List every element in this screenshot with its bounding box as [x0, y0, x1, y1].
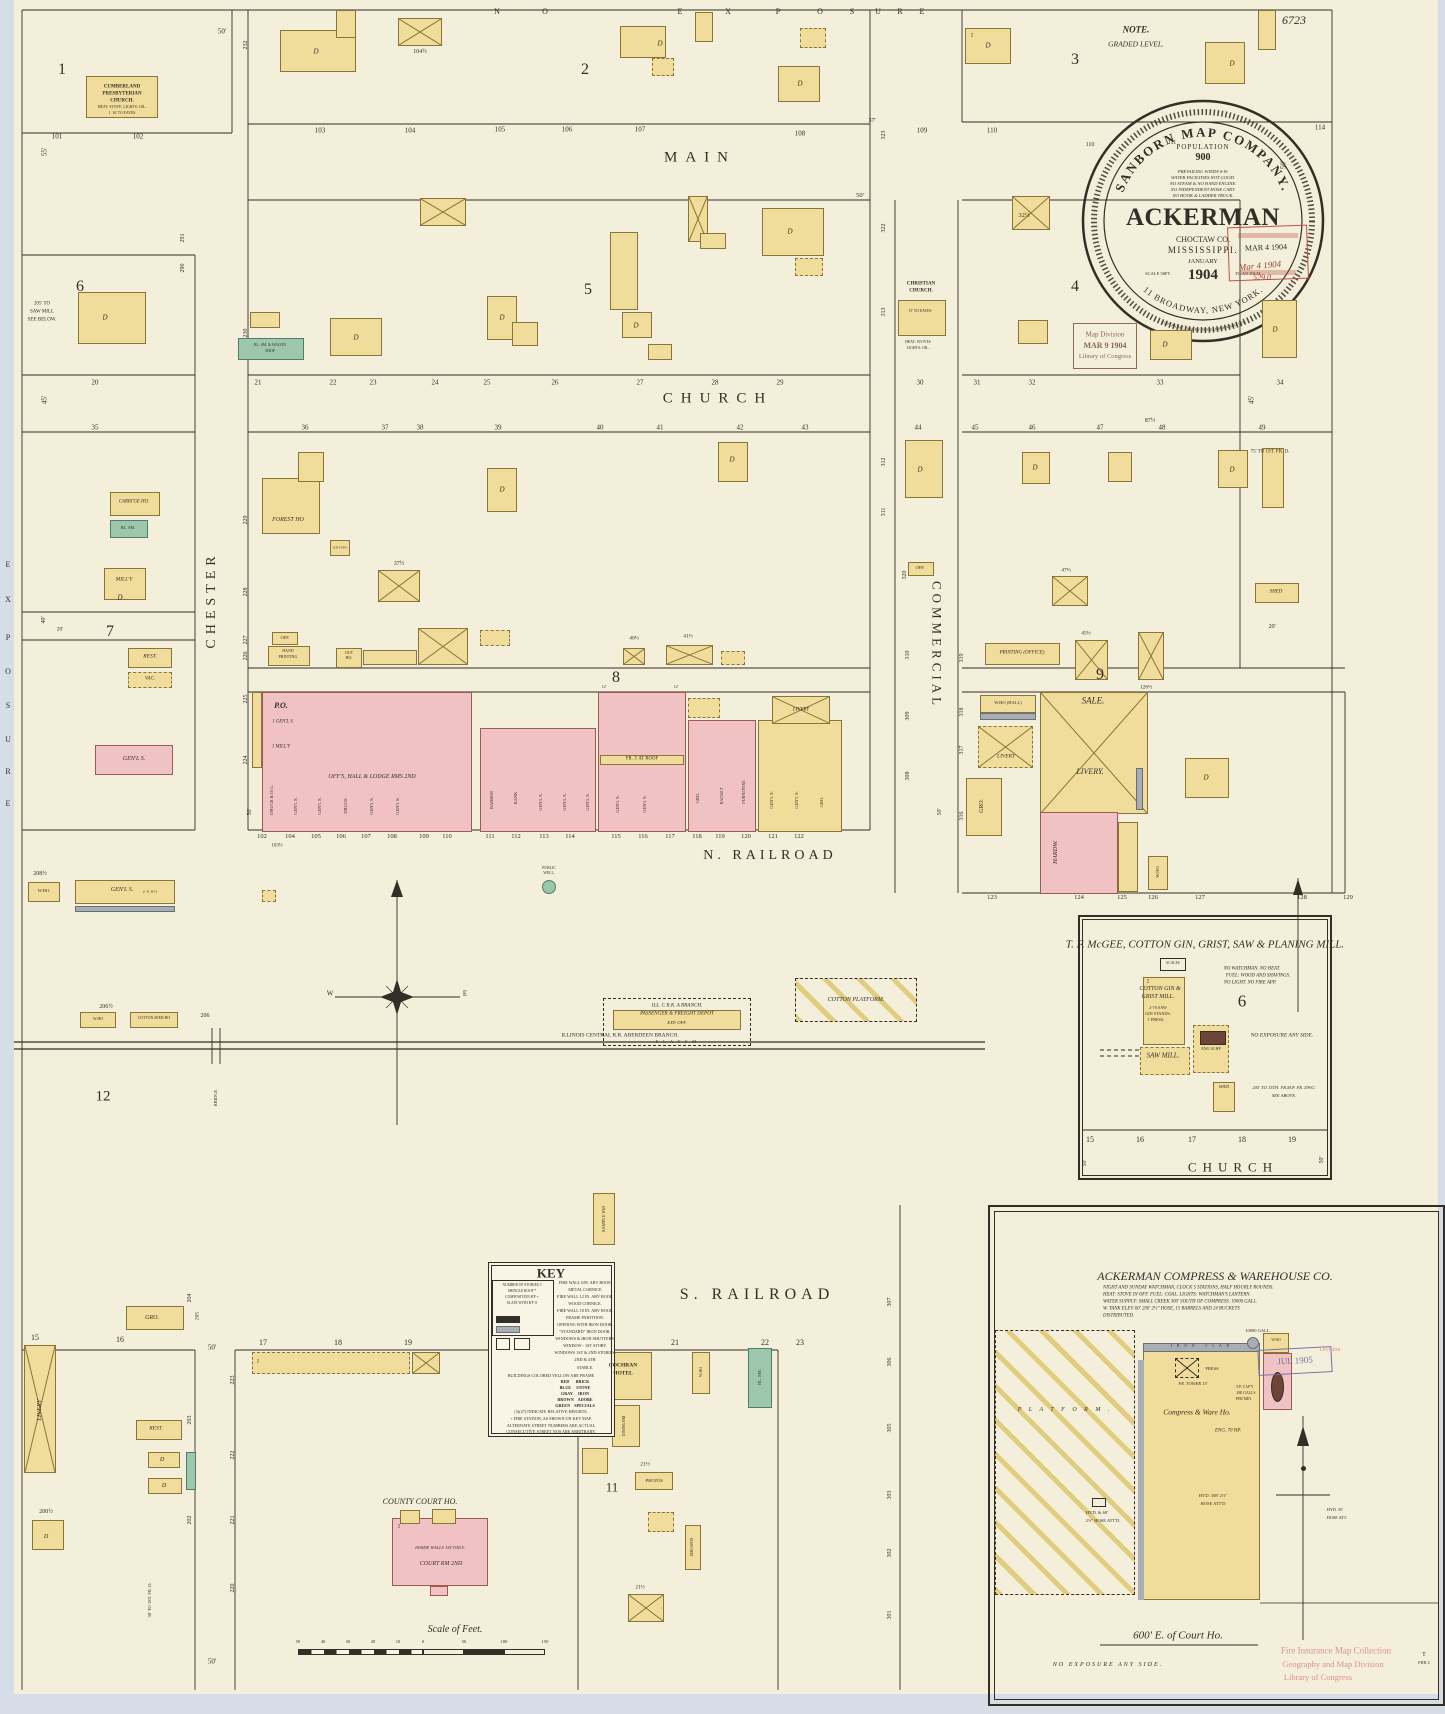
building-label: GEN'L S.	[111, 887, 134, 893]
map-label: BROWN ADOBE	[557, 1398, 592, 1402]
map-label: 50'	[208, 1345, 216, 1352]
map-label: WELL.	[543, 872, 555, 876]
building	[762, 208, 824, 256]
map-label: 206	[201, 1013, 210, 1019]
map-label: 50'	[218, 29, 226, 36]
building	[336, 10, 356, 38]
block-number: 9	[1096, 667, 1104, 683]
map-label: 2	[971, 34, 974, 39]
map-label: DRUGS & D.G.	[270, 785, 275, 815]
street-number: 15	[1086, 1136, 1094, 1144]
map-label: HOSE ATT.	[1327, 1516, 1347, 1520]
street-number: 110	[987, 128, 997, 135]
building-label: GEN'L S.	[123, 756, 146, 762]
stamp-loc-pink: Library of Congress	[1284, 1673, 1352, 1682]
stamp-purple-text: JUL 1905	[1277, 1356, 1313, 1367]
hydrant-icon	[1092, 1498, 1106, 1507]
fire-pump-icon	[1271, 1372, 1284, 1402]
map-label: D	[160, 1457, 164, 1463]
map-label: D	[102, 315, 107, 322]
stamp-loc-pink: Geography and Map Division	[1282, 1660, 1383, 1669]
map-label: S	[850, 8, 854, 16]
inset-title-compress: ACKERMAN COMPRESS & WAREHOUSE CO.	[1097, 1270, 1332, 1282]
map-label: FIRE WALL 18 IN. ABV ROOF,	[557, 1309, 613, 1313]
building-forest-house	[262, 478, 320, 534]
building	[648, 344, 672, 360]
map-label: R	[5, 768, 10, 776]
street-number: 26	[552, 380, 559, 387]
street-number: 127	[1195, 895, 1205, 902]
building-label: REST.	[143, 654, 157, 660]
building	[186, 1452, 196, 1490]
map-label: 32½	[1018, 213, 1029, 220]
street-number: 228	[243, 588, 249, 597]
block-number: 2	[581, 62, 589, 78]
block-number: 3	[1071, 52, 1079, 68]
building	[1150, 330, 1192, 360]
map-label: BUILDINGS COLORED YELLOW ARE FRAME	[508, 1374, 595, 1378]
map-label: HEAT: STOVE IN OFF. FUEL: COAL. LIGHTS: …	[1103, 1294, 1251, 1299]
map-label: KITCH'N	[333, 546, 347, 550]
railroad-label: ILLINOIS CENTRAL R.R. ABERDEEN BRANCH.	[561, 1033, 678, 1039]
map-label: 1 PRESS.	[1148, 1018, 1165, 1022]
building-brick-row-center	[480, 728, 596, 832]
map-label: SAMPLE RM	[602, 1206, 607, 1232]
stamp-red-text: Division	[1320, 1347, 1341, 1353]
building	[700, 233, 726, 249]
building	[1205, 42, 1245, 84]
map-label: O	[542, 8, 548, 16]
map-label: HAND	[282, 649, 294, 653]
scale-label: Scale of Feet.	[428, 1625, 483, 1635]
map-label: 126½	[1140, 685, 1152, 691]
map-label: 50'	[208, 1659, 216, 1666]
building	[905, 440, 943, 498]
map-label: D	[1203, 775, 1208, 782]
street-number: 120	[741, 834, 751, 841]
street-number: 29	[777, 380, 784, 387]
map-label: SEE BELOW.	[28, 318, 57, 323]
street-number: 310	[905, 651, 911, 660]
street-number: 27	[637, 380, 644, 387]
map-label: 21½	[635, 1585, 645, 1591]
map-label: 45'	[1249, 396, 1256, 404]
building	[688, 720, 756, 832]
building	[104, 568, 146, 600]
logo-fact: NO INDEPENDENT HOSE CART.	[1170, 187, 1236, 192]
building	[978, 726, 1033, 768]
street-number: 115	[611, 834, 621, 841]
map-label: OFF.	[280, 636, 289, 641]
street-number: 25	[484, 380, 491, 387]
building-label: BL. SM. & WAGON	[254, 344, 286, 348]
street-number: 309	[905, 712, 911, 721]
map-label: 10000 GALL.	[1245, 1329, 1271, 1334]
building	[400, 1510, 420, 1524]
street-number: 102	[133, 134, 144, 141]
map-label: COURT RM 2ND	[420, 1561, 463, 1567]
map-label: P L A T F O R M .	[1018, 1407, 1113, 1413]
map-label: P	[6, 634, 10, 642]
map-label: NO LIGHT. NO FIRE APP.	[1224, 982, 1277, 987]
map-label: NIGHT AND SUNDAY WATCHMAN, CLOCK 5 STATI…	[1103, 1287, 1274, 1292]
building	[666, 645, 713, 665]
street-number: 30	[917, 380, 924, 387]
building	[262, 890, 276, 902]
map-label: HYD. & 60'	[1086, 1511, 1108, 1516]
building-label: FOREST HO	[272, 517, 304, 523]
map-label: E	[6, 561, 11, 569]
map-label: FR. TOWER 15'	[1178, 1382, 1207, 1387]
street-number: 17	[259, 1339, 267, 1347]
map-label: 1 MILL'Y	[272, 746, 290, 751]
building	[512, 322, 538, 346]
building-label: CARRI'GE HO.	[119, 501, 149, 506]
street-number: 32	[1029, 380, 1036, 387]
building-label: LIVERY.	[1076, 768, 1103, 776]
map-label: METAL CORNICE	[568, 1288, 601, 1292]
map-label: HYD. 108' 2½"	[1199, 1494, 1227, 1499]
street-number: 125	[1117, 895, 1127, 902]
street-number: 23	[370, 380, 377, 387]
map-label: D	[633, 323, 638, 330]
building	[1052, 576, 1088, 606]
map-label: SERVANTS	[691, 1538, 695, 1557]
street-number: 19	[1288, 1136, 1296, 1144]
building	[412, 1352, 440, 1374]
building-label-depot: ILL. C.R.R. A BRANCH.	[652, 1003, 703, 1008]
street-number: 311	[881, 508, 887, 517]
street-number: 308	[905, 772, 911, 781]
map-label: 45'	[42, 396, 49, 404]
street-number: 45	[972, 425, 979, 432]
logo-fact: NO HOOK & LADDER TRUCK.	[1171, 193, 1233, 198]
street-number: 118	[692, 834, 702, 841]
building-label: HOTEL	[613, 1371, 633, 1377]
map-label: 206½	[99, 1004, 113, 1010]
street-number: 18	[1238, 1136, 1246, 1144]
building-label: COTTON GIN &	[1139, 986, 1180, 992]
map-label: SHED	[1219, 1085, 1229, 1089]
map-label: 37½	[394, 561, 405, 567]
map-label: GEN'L S.	[294, 797, 299, 814]
map-label: (5)(27) INDICATE RELATIVE HEIGHTS.	[514, 1410, 587, 1414]
map-label: W.HO (HALL)	[994, 701, 1022, 706]
map-label: 45½	[1081, 631, 1091, 637]
sanborn-map-sheet: SANBORN MAP COMPANY. 11 BROADWAY, NEW YO…	[0, 0, 1445, 1714]
street-number: 46	[1029, 425, 1036, 432]
street-number: 41	[657, 425, 664, 432]
street-number: 38	[417, 425, 424, 432]
building-label: CUMBERLAND	[104, 85, 140, 90]
map-label: GEN'L S.	[370, 797, 375, 814]
street-number: 221	[230, 1516, 236, 1525]
street-number: 204	[187, 1294, 193, 1303]
map-label: E	[463, 991, 467, 998]
building	[418, 628, 468, 665]
building-label: GRO.	[145, 1315, 159, 1321]
street-number: 23	[796, 1339, 804, 1347]
stamp-date: MAR 4 1904	[1245, 243, 1287, 252]
map-label: O	[5, 668, 11, 676]
street-number: 37	[382, 425, 389, 432]
street-number: 113	[539, 834, 549, 841]
map-label: STABLE.	[577, 1366, 594, 1370]
street-number: 31	[974, 380, 981, 387]
street-number: 101	[52, 134, 63, 141]
map-label: D	[917, 467, 922, 474]
map-label: WINDOW - 1ST STORY.	[563, 1344, 607, 1348]
map-label: D	[162, 1483, 166, 1489]
map-label: WINDOWS 1ST & 2ND STORIES.	[554, 1351, 615, 1355]
map-label: SLATE WITH R'F O	[507, 1302, 537, 1306]
map-label: LIVERY	[793, 708, 809, 713]
building	[398, 18, 442, 46]
street-number: 104	[405, 128, 416, 135]
building-label: CHURCH.	[110, 99, 133, 104]
building-label: MILL'Y	[116, 577, 133, 583]
map-label: SCALES	[1166, 962, 1179, 966]
public-well	[542, 880, 556, 894]
map-label: FRAME PARTITION.	[566, 1316, 604, 1320]
building	[628, 1594, 664, 1622]
street-number: 114	[1315, 125, 1325, 132]
map-label: N	[494, 8, 500, 16]
map-label: GRO.	[820, 797, 825, 808]
street-number: 108	[387, 834, 397, 841]
map-label: 10	[396, 1640, 401, 1645]
map-label: EXP. OFF.	[667, 1021, 686, 1026]
street-number: 107	[361, 834, 371, 841]
map-label: FEB 2	[1418, 1661, 1430, 1666]
street-number: 22	[761, 1339, 769, 1347]
map-label: 20'	[1268, 624, 1275, 630]
map-label: I R O N C L A D	[1171, 1345, 1231, 1349]
logo-fact: PREVAILING WINDS S-W.	[1177, 169, 1229, 174]
map-label: 2	[1147, 980, 1150, 985]
map-label: FUEL: WOOD AND SHAVINGS.	[1226, 975, 1290, 980]
map-label: FURNITURE	[742, 780, 746, 804]
map-label: SAW MILL	[30, 310, 54, 315]
street-number: 17	[1188, 1136, 1196, 1144]
street-label-chester: CHESTER	[205, 551, 219, 648]
map-label: R	[897, 8, 902, 16]
street-number: 313	[881, 308, 887, 317]
map-label: 2	[398, 1525, 401, 1530]
map-label: BLUE STONE	[560, 1386, 591, 1390]
street-number: 16	[116, 1336, 124, 1344]
map-label: + FIRE STATION, AS SHOWN ON KEY MAP.	[510, 1417, 592, 1421]
map-label: 50'	[1281, 161, 1288, 169]
street-number: 306	[887, 1358, 893, 1367]
building	[1118, 822, 1138, 892]
building	[610, 232, 638, 310]
street-number: 107	[635, 127, 646, 134]
street-number: 305	[887, 1424, 893, 1433]
map-label: 205' TO	[34, 302, 50, 307]
building-sale-livery	[1040, 692, 1148, 814]
building-label-post-office: P.O.	[274, 702, 288, 710]
scale-bar	[464, 1649, 504, 1655]
building-label: PRINTING (OFFICE)	[1000, 651, 1045, 656]
map-label: D	[499, 487, 504, 494]
sheet-number: 6723	[1282, 14, 1306, 26]
map-label: 208½	[33, 871, 47, 877]
map-label: ENG. 70 HP.	[1215, 1429, 1241, 1434]
map-label: NUMBER OF STORIES 3	[503, 1284, 542, 1288]
building	[1262, 448, 1284, 508]
building-label: GRIST MILL.	[1142, 994, 1175, 1000]
map-label: GREEN SPECIALS	[555, 1404, 595, 1408]
building-label-court-house: COUNTY COURT HO.	[383, 1498, 458, 1506]
map-label: ENG 30 HP	[1201, 1047, 1220, 1051]
map-label: 200½	[39, 1509, 53, 1515]
street-number: 44	[915, 425, 922, 432]
street-number: 229	[243, 516, 249, 525]
water-tank-icon	[1247, 1337, 1259, 1349]
map-label: LIVERY	[997, 754, 1015, 760]
street-number: 35	[92, 425, 99, 432]
map-label: 40	[321, 1640, 326, 1645]
map-label: 205' TO 15TH. FR.M.P. FR. DWG.	[1252, 1086, 1315, 1091]
map-label: SHED	[1270, 590, 1283, 595]
building	[514, 1338, 530, 1350]
map-label: PHOTOS	[645, 1479, 662, 1484]
map-label: F.P. CAP'Y	[1236, 1386, 1253, 1390]
block-number: 11	[606, 1481, 619, 1494]
map-label: NO WATCHMAN. NO HEAT.	[1224, 968, 1281, 973]
street-number: 21	[671, 1339, 679, 1347]
map-label: 50'	[1082, 1159, 1088, 1166]
building	[695, 12, 713, 42]
map-label: PRESS	[1205, 1367, 1218, 1372]
street-number: 39	[495, 425, 502, 432]
map-label: GRO.	[696, 793, 701, 804]
building	[378, 570, 420, 602]
building-label: OFF'S, HALL & LODGE RMS 2ND	[328, 774, 415, 780]
legend-title: KEY	[537, 1267, 565, 1280]
building	[1238, 233, 1298, 238]
building-label: Compress & Ware Ho.	[1163, 1408, 1231, 1416]
map-label: W.HO.	[38, 889, 51, 894]
map-label: INSIDE WALLS 1ST ONLY.	[415, 1546, 465, 1551]
map-label: PRINTING	[279, 655, 298, 659]
street-number: 322	[881, 224, 887, 233]
map-label: X	[725, 8, 731, 16]
street-number: 106	[562, 127, 573, 134]
map-label: W.HO	[1271, 1339, 1280, 1343]
map-label: 55'	[42, 148, 49, 156]
street-number: 49	[1259, 425, 1266, 432]
building	[363, 650, 417, 665]
map-label: O	[817, 8, 823, 16]
map-label: ALTERNATE STREET NUMBERS ARE ACTUAL	[507, 1424, 595, 1428]
map-label: 15' TO EAVES	[908, 310, 931, 314]
building-label: LIVERY	[37, 1399, 44, 1420]
map-label: 50'	[856, 193, 864, 200]
map-label: RED BRICK	[561, 1380, 590, 1384]
street-number: 230	[243, 329, 249, 338]
building-label: HEAT: STOVE. LIGHTS: OIL.	[98, 106, 146, 110]
map-label: 50'	[247, 808, 253, 815]
building	[1138, 632, 1164, 680]
map-label: HOSE ATT'D	[1201, 1502, 1226, 1507]
building	[250, 312, 280, 328]
building	[800, 28, 826, 48]
building-label: SHOP	[265, 350, 275, 354]
building-christian-church	[898, 300, 946, 336]
street-number: 48	[1159, 425, 1166, 432]
building-label-depot: PASSENGER & FREIGHT DEPOT	[640, 1011, 714, 1016]
street-number: 106	[336, 834, 346, 841]
building-label: COTTON PLATFORM.	[828, 997, 885, 1003]
compass-star	[380, 979, 414, 1015]
street-number: 19	[404, 1339, 412, 1347]
building	[1136, 768, 1143, 810]
street-number: 232	[243, 41, 249, 50]
map-label: 20	[371, 1640, 376, 1645]
street-number: 110	[442, 834, 452, 841]
map-label: E	[6, 800, 11, 808]
map-label: BL. SM.	[758, 1369, 763, 1385]
building	[75, 906, 175, 912]
map-label: D	[787, 229, 792, 236]
building	[252, 1352, 410, 1374]
logo-population-value: 900	[1196, 152, 1211, 163]
map-label: S	[6, 702, 10, 710]
map-label: D	[797, 81, 802, 88]
map-label: FIRE WALL 12 IN. ABV ROOF,	[557, 1295, 613, 1299]
street-number: 110	[1086, 142, 1095, 148]
stamp-handwriting: 529.0	[1253, 274, 1271, 282]
street-number: 117	[665, 834, 675, 841]
compress-platform	[995, 1330, 1135, 1595]
map-label: CONSECUTIVE STREET NOS ARE ARBITRARY.	[506, 1430, 595, 1434]
map-label: LIGHTS: OIL.	[907, 347, 930, 351]
building	[1108, 452, 1132, 482]
map-label: 150	[542, 1640, 549, 1645]
map-label: BRIDGE	[214, 1090, 219, 1107]
map-label: D	[985, 43, 990, 50]
map-label: W.HO	[1156, 866, 1161, 877]
building-label: VAC.	[145, 677, 155, 682]
logo-month: JANUARY	[1188, 258, 1218, 265]
street-number: 126	[1148, 895, 1158, 902]
street-number: 111	[485, 834, 494, 841]
logo-fact: WATER FACILITIES NOT GOOD.	[1171, 175, 1235, 180]
street-label-n-railroad: N. RAILROAD	[703, 849, 836, 863]
map-label: RACKET	[720, 788, 724, 805]
logo-county: CHOCTAW CO.	[1176, 235, 1230, 244]
building	[1262, 300, 1297, 358]
map-label: 2-70 SAW	[1149, 1006, 1167, 1010]
street-label-s-railroad: S. RAILROAD	[680, 1287, 835, 1303]
building	[688, 698, 720, 718]
street-number: 108	[795, 131, 806, 138]
map-label: 2ND & 4TH	[574, 1358, 595, 1362]
map-label: BANK	[514, 792, 519, 805]
map-label: 280 GALLS	[1237, 1392, 1256, 1396]
building-label: SAW MILL.	[1147, 1053, 1180, 1060]
map-label: 30	[346, 1640, 351, 1645]
map-label: D	[729, 457, 734, 464]
building	[582, 1448, 608, 1474]
map-label: D	[499, 315, 504, 322]
building	[758, 720, 842, 832]
map-label: 12'	[674, 685, 679, 689]
map-label: HYD. 50'	[1327, 1508, 1343, 1512]
map-label: WOOD CORNICE.	[568, 1302, 602, 1306]
